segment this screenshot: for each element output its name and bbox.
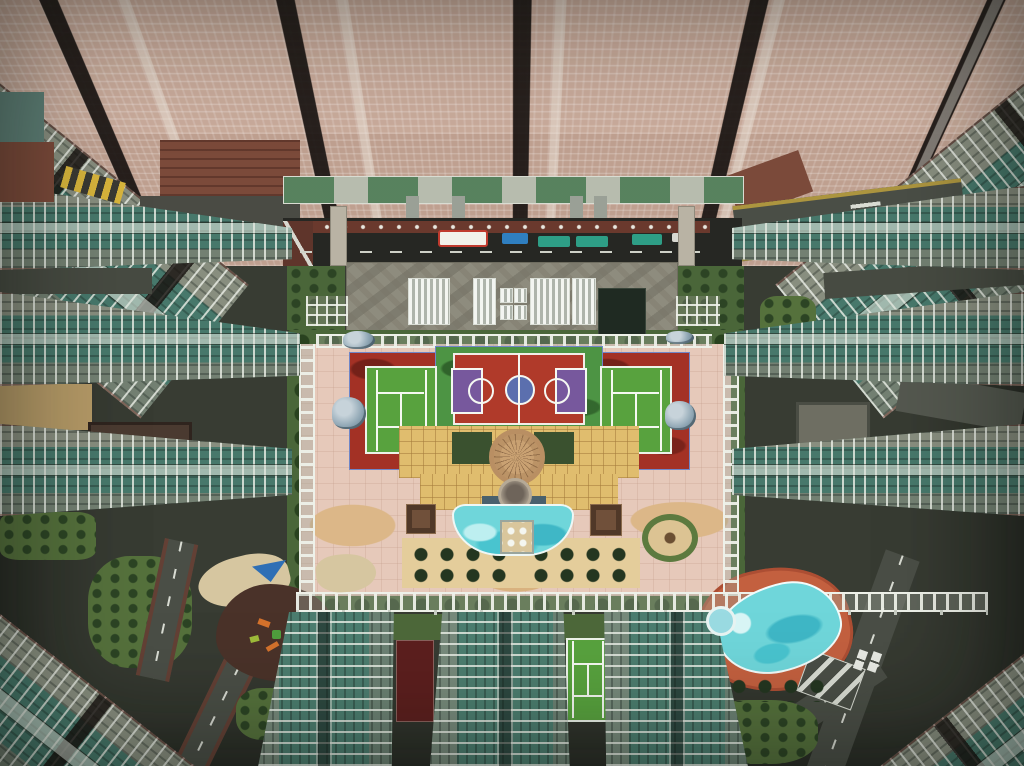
road-median-brick — [300, 221, 710, 233]
west-lawn — [0, 512, 96, 560]
dark-rooftop-court — [598, 288, 646, 336]
nw-brick-plaza — [160, 140, 300, 196]
concrete-pillar-west — [330, 206, 347, 266]
south-green-tennis-court — [566, 638, 610, 722]
pool-deck-steps — [500, 520, 534, 554]
skylight-panel-small — [514, 305, 527, 320]
skylight-panel — [408, 278, 450, 325]
blue-truck — [502, 233, 528, 244]
pavilion-west — [406, 504, 436, 534]
skylight-panel — [530, 278, 570, 325]
spa-pool — [706, 606, 736, 636]
skylight-panel-small — [500, 305, 513, 320]
skylight-panel-small — [514, 288, 527, 303]
podium-east-trellis-wing — [676, 296, 720, 326]
flower-garden-ring — [642, 514, 698, 562]
south-dark-red-court — [396, 640, 434, 722]
west-midground-road — [0, 268, 152, 294]
tower-base-canopy — [283, 176, 744, 204]
south-pergola-walkway — [296, 592, 988, 612]
boulder-sculpture — [666, 331, 694, 344]
podium-edge-post — [570, 196, 583, 218]
basketball-court — [453, 353, 585, 425]
lane-dash-line — [300, 251, 700, 253]
play-equipment — [257, 618, 270, 628]
skylight-panel-small — [500, 288, 513, 303]
podium-edge-post — [594, 196, 607, 218]
south-tower-center — [428, 612, 582, 766]
pavilion-east — [590, 504, 622, 536]
basketball-key-west — [451, 368, 483, 414]
skylight-panel — [473, 278, 496, 325]
play-equipment — [266, 641, 280, 652]
nw-brick-building — [0, 142, 54, 202]
circular-mosaic — [489, 429, 545, 485]
boulder-sculpture — [665, 401, 696, 430]
green-minibus — [576, 236, 608, 247]
boulder-sculpture — [343, 331, 375, 349]
courtyard-west-pergola — [299, 344, 315, 596]
east-tower-3 — [732, 424, 1024, 516]
podium-edge-post — [452, 196, 465, 218]
nw-teal-roof-building — [0, 92, 44, 142]
green-minibus — [632, 234, 662, 245]
podium-west-trellis-wing — [306, 296, 348, 326]
west-sand-ground — [0, 384, 92, 430]
boulder-sculpture — [332, 397, 366, 429]
play-equipment — [249, 635, 259, 643]
podium-edge-post — [406, 196, 419, 218]
play-equipment — [272, 630, 281, 639]
green-minibus — [538, 236, 570, 247]
basketball-key-east — [555, 368, 587, 414]
double-decker-bus — [438, 230, 488, 247]
concrete-pillar-east — [678, 206, 695, 266]
aerial-photo-stage: Top-down drone photograph of a dense Hon… — [0, 0, 1024, 766]
sunken-garden-west — [452, 432, 492, 464]
west-tower-3 — [0, 424, 292, 516]
skylight-panel — [572, 278, 596, 325]
